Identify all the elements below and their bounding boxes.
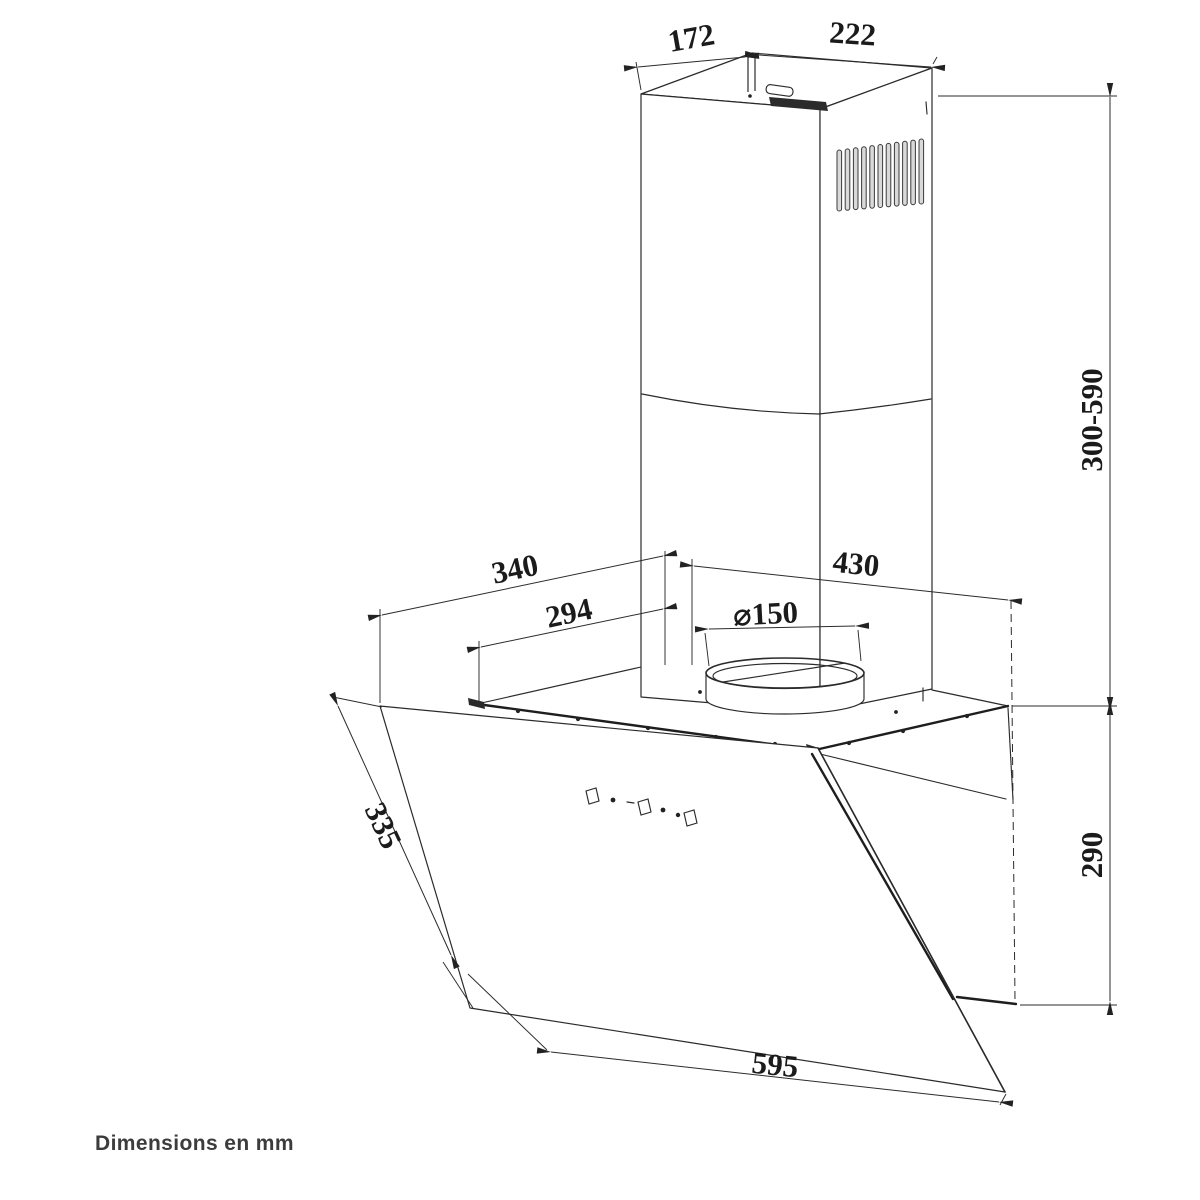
indicator-dot [661,808,666,813]
vent-grille-icon [837,139,924,211]
dim-label-outlet-diameter: ⌀150 [732,594,799,632]
units-note: Dimensions en mm [95,1132,294,1155]
top-face-back-edge [932,690,1008,706]
dim-label-glass-width: 595 [750,1045,800,1085]
dim-label-hood-top-depth: 340 [488,547,541,591]
dim-label-body-height: 290 [1074,832,1109,879]
body-bottom-edge [957,997,1016,1004]
top-face-left-edge [477,667,641,704]
indicator-dot [676,813,680,817]
dim-label-top-duct-depth: 172 [665,16,717,59]
dim-label-chimney-height: 300-590 [1074,368,1109,471]
mounting-tab [748,55,755,92]
cooker-hood-diagram: 172 222 300-590 290 340 294 430 ⌀150 335… [0,0,1200,1200]
left-corner-bracket [468,698,485,709]
indicator-dot [611,798,616,803]
glass-panel [380,706,1005,1092]
screw-dot [748,94,752,98]
dim-label-hood-top-width: 430 [831,544,881,584]
hidden-edge-extension [1011,601,1015,1001]
top-face-right-edge [815,706,1008,750]
right-face-inner-edge [820,754,1006,799]
dim-label-filter-depth: 294 [542,591,595,635]
dim-label-top-duct-width: 222 [828,14,877,52]
technical-drawing-page: 172 222 300-590 290 340 294 430 ⌀150 335… [0,0,1200,1200]
glass-front-face [380,706,1005,1092]
